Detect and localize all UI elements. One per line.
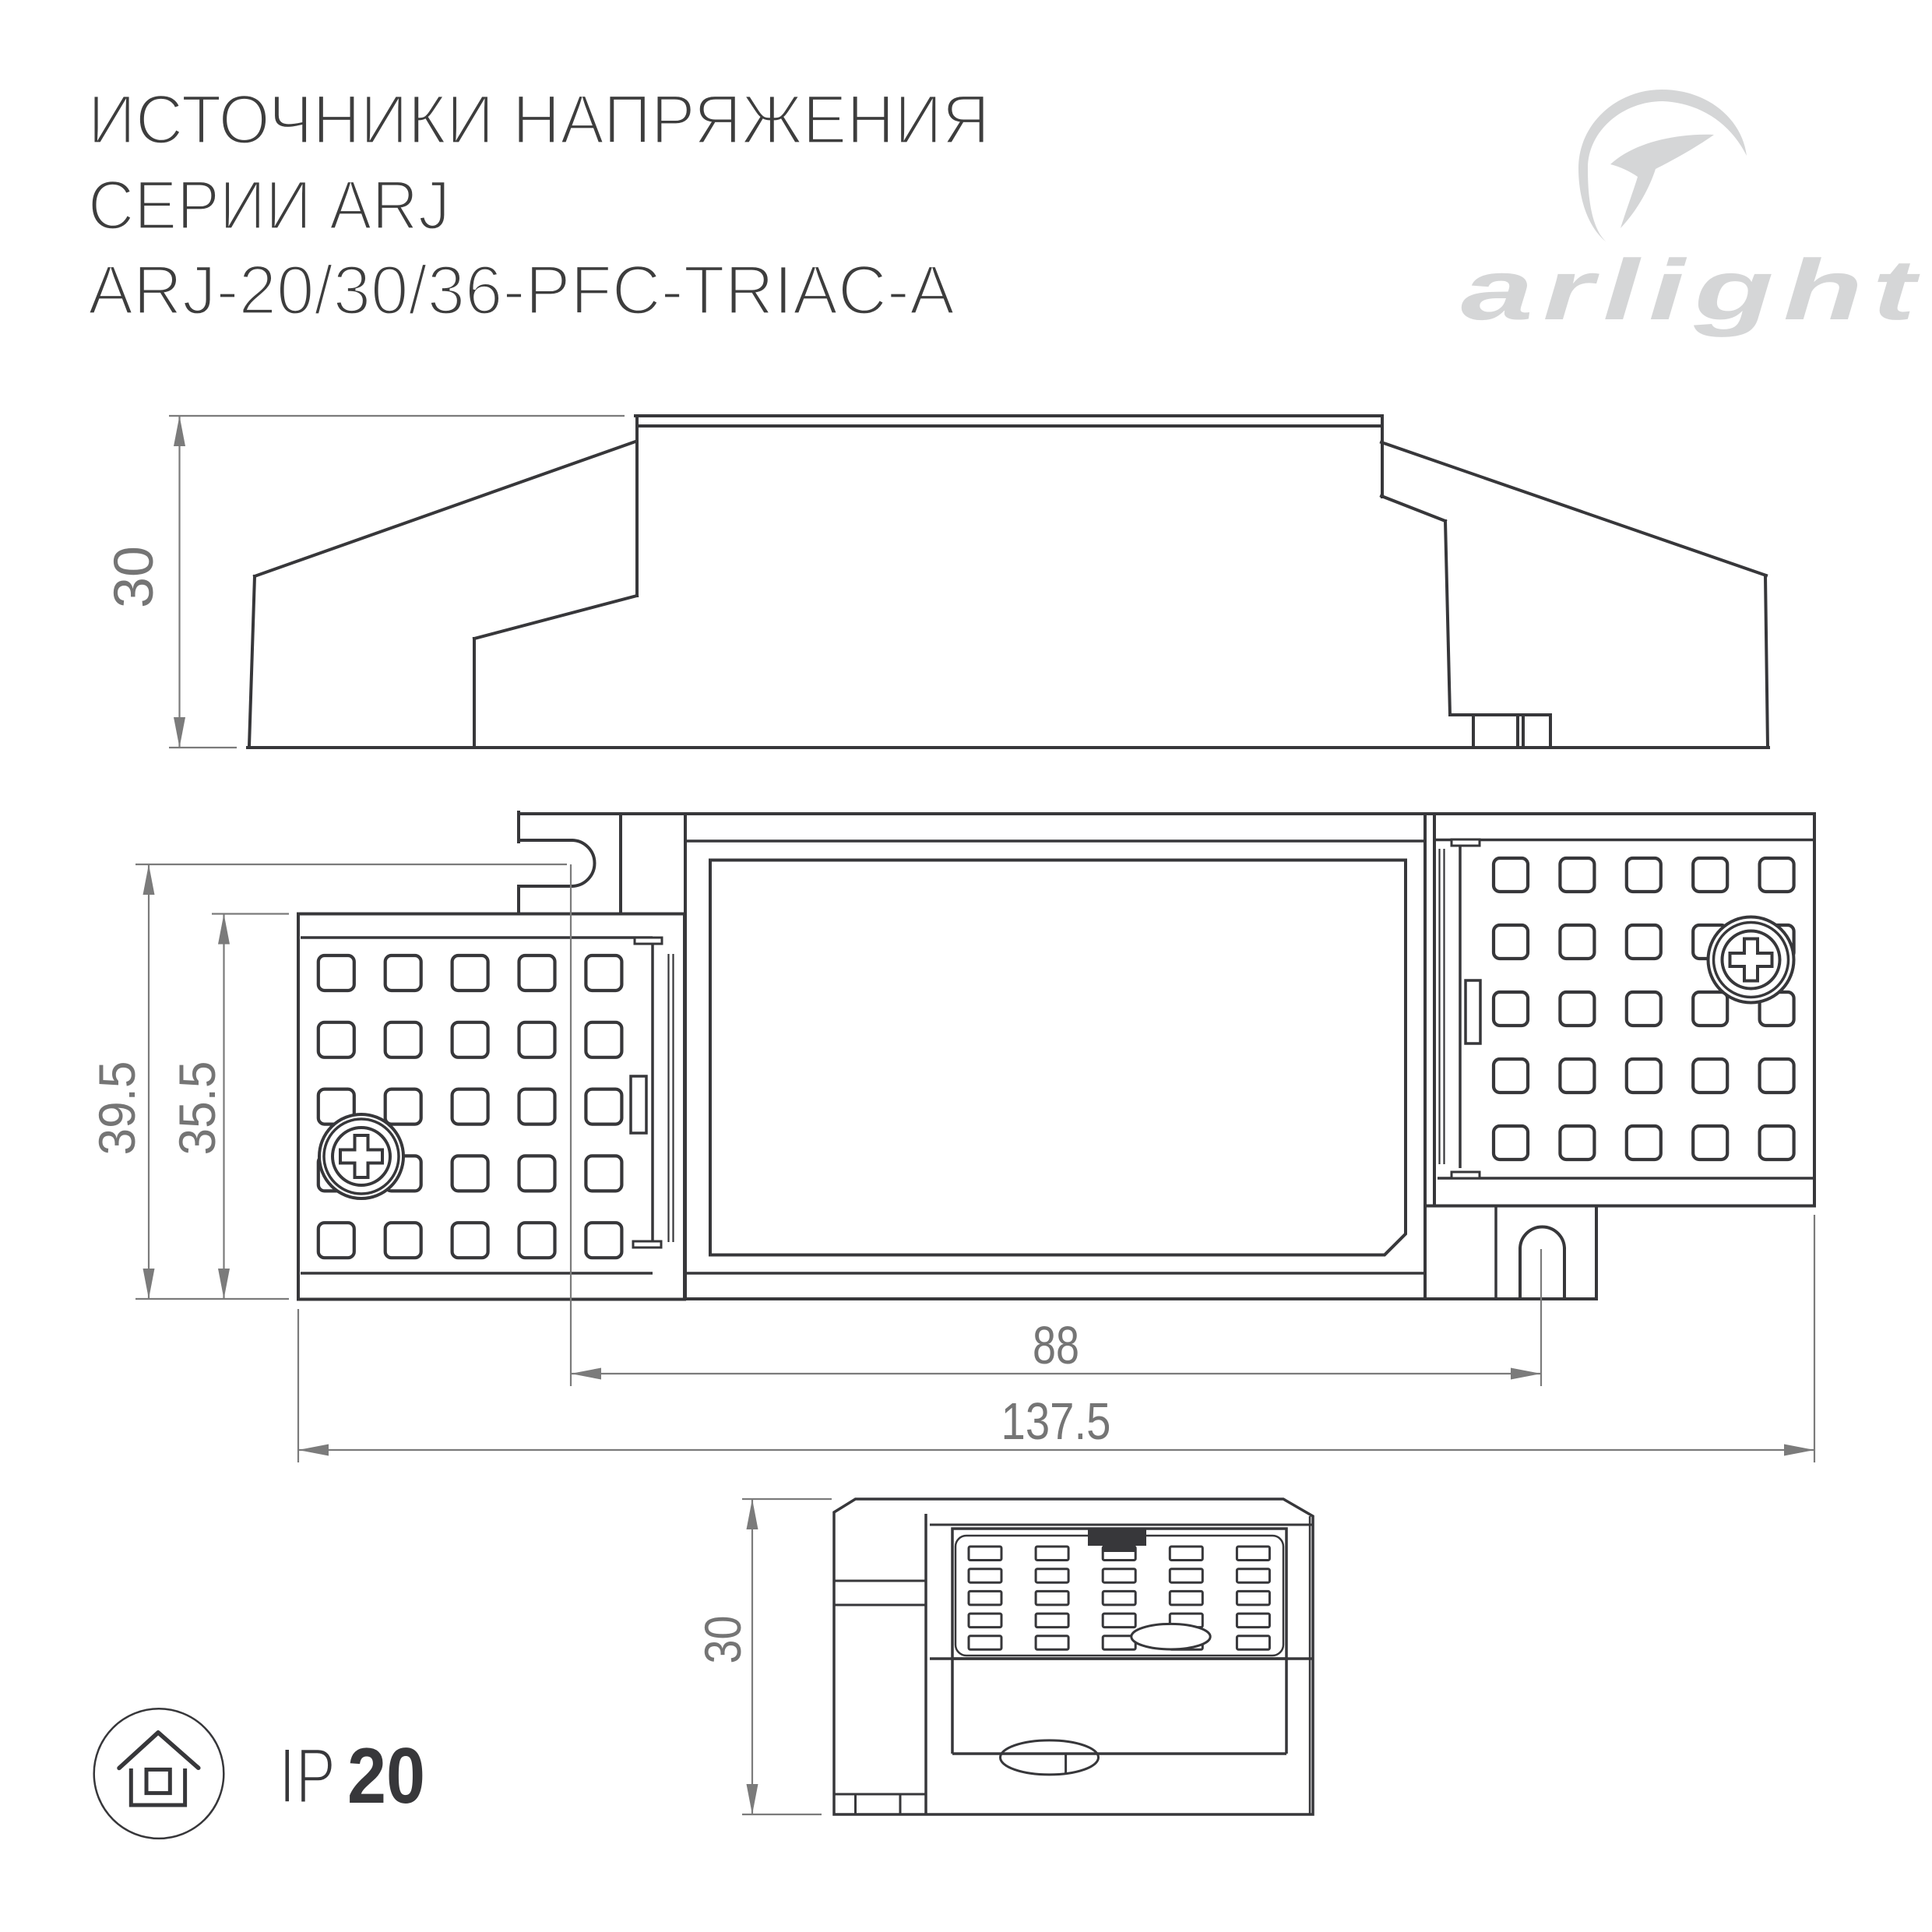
- svg-text:ARJ-20/30/36-PFC-TRIAC-A: ARJ-20/30/36-PFC-TRIAC-A: [88, 251, 955, 329]
- svg-text:137.5: 137.5: [1001, 1392, 1111, 1451]
- svg-text:30: 30: [104, 546, 165, 608]
- svg-text:35.5: 35.5: [168, 1061, 226, 1156]
- svg-text:39.5: 39.5: [88, 1061, 146, 1156]
- svg-text:IP20: IP20: [279, 1733, 425, 1820]
- svg-text:arlight: arlight: [1461, 242, 1925, 338]
- svg-text:СЕРИИ ARJ: СЕРИИ ARJ: [88, 166, 450, 244]
- svg-text:30: 30: [694, 1616, 751, 1664]
- svg-text:88: 88: [1033, 1315, 1079, 1375]
- svg-text:ИСТОЧНИКИ НАПРЯЖЕНИЯ: ИСТОЧНИКИ НАПРЯЖЕНИЯ: [88, 80, 990, 158]
